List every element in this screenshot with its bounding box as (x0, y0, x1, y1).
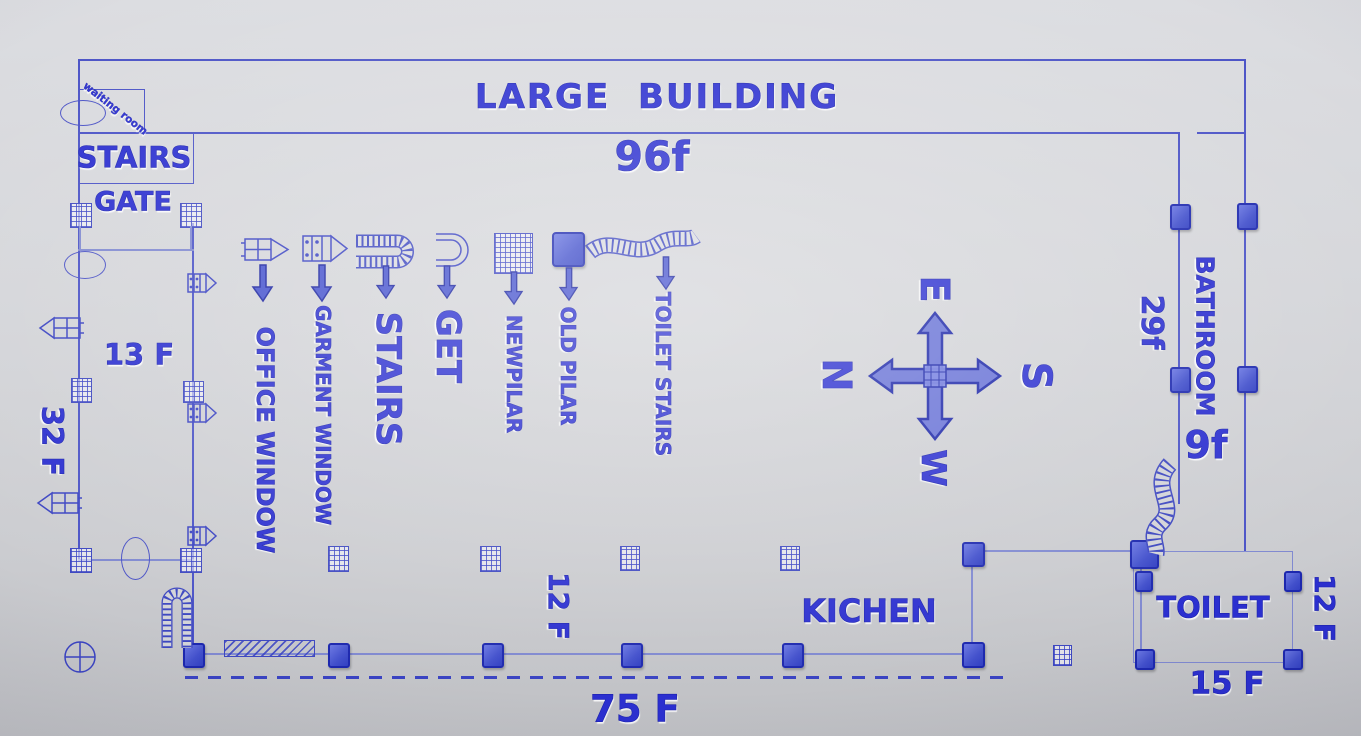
garment-window-icon (186, 401, 218, 425)
legend-toilet-stairs-label: TOILET STAIRS (653, 292, 673, 456)
legend-office-window-label: OFFICE WINDOW (253, 327, 277, 554)
bottom-hatched-strip (224, 640, 315, 657)
floor-plan-canvas: E N S W LARGE BUILDING 96f waiting room … (0, 0, 1361, 736)
new-pillar (180, 548, 202, 573)
dim-15f: 15 F (1189, 669, 1264, 700)
plan-title: LARGE BUILDING (475, 80, 839, 114)
legend-stairs-label: STAIRS (371, 312, 405, 447)
legend-garment-window-label: GARMENT WINDOW (313, 305, 333, 525)
wall-stairs-room-bottom (78, 249, 194, 251)
wall-kitchen-top (972, 550, 1133, 552)
down-arrow-icon (558, 267, 580, 301)
new-pillar (180, 203, 202, 228)
circle-cross-column-icon (62, 639, 98, 675)
old-pillar (962, 542, 985, 567)
wall-bathroom-inner (1178, 132, 1180, 504)
office-window-icon (38, 314, 84, 342)
old-pillar (1170, 204, 1191, 230)
down-arrow-icon (375, 265, 397, 299)
dim-29f: 29f (1136, 295, 1166, 350)
legend-old-pilar-label: OLD PILAR (558, 306, 578, 425)
old-pillar (328, 643, 350, 668)
office-window-icon (36, 489, 82, 517)
gate-label: GATE (94, 189, 172, 216)
dim-32f: 32 F (38, 406, 67, 476)
new-pillar (480, 546, 501, 572)
get-icon (432, 230, 476, 270)
toilet-label: TOILET (1156, 594, 1269, 623)
down-arrow-icon (503, 271, 525, 305)
old-pillar-icon (552, 232, 585, 267)
old-pillar (1284, 571, 1302, 592)
wall-outer-top (78, 59, 1246, 61)
new-pillar (70, 203, 92, 228)
garment-window-icon (300, 232, 350, 265)
new-pillar (780, 546, 800, 571)
compass-south-label: S (1016, 362, 1056, 391)
left-wall-door-arc (64, 251, 106, 279)
old-pillar (782, 643, 804, 668)
new-pillar (70, 548, 92, 573)
down-arrow-icon (436, 265, 458, 299)
garment-window-icon (186, 524, 218, 548)
down-arrow-icon (252, 264, 274, 302)
new-pillar-icon (494, 233, 533, 274)
bottom-left-u-stairs (156, 582, 198, 652)
kitchen-label: KICHEN (801, 595, 937, 627)
new-pillar (620, 546, 640, 571)
old-pillar (1170, 367, 1191, 393)
dim-9f: 9f (1185, 426, 1228, 464)
compass-rose (862, 303, 1008, 449)
old-pillar (1135, 649, 1155, 670)
old-pillar (1135, 571, 1153, 592)
bottom-room-door-arc (121, 537, 150, 580)
bottom-dashed-line (185, 676, 1012, 679)
legend-get-label: GET (431, 309, 465, 383)
compass-north-label: N (816, 358, 856, 391)
gate-stem-left (79, 226, 81, 250)
dim-13f: 13 F (104, 341, 174, 370)
bathroom-label: BATHROOM (1193, 255, 1218, 416)
compass-west-label: W (916, 449, 950, 487)
toilet-stairs-icon (586, 226, 700, 266)
wall-96f-line-right (1197, 132, 1246, 134)
dim-12f-toilet: 12 F (1310, 574, 1338, 642)
toilet-curved-stairs (1118, 458, 1188, 558)
office-window-icon (241, 234, 291, 265)
gate-stem-right (190, 226, 192, 250)
old-pillar (621, 643, 643, 668)
new-pillar (328, 546, 349, 572)
old-pillar (1237, 366, 1258, 393)
old-pillar (1237, 203, 1258, 230)
old-pillar (962, 642, 985, 668)
dim-12f-kitchen: 12 F (544, 572, 572, 640)
old-pillar (1283, 649, 1303, 670)
legend-newpilar-label: NEWPILAR (504, 315, 524, 433)
stairs-icon (350, 228, 420, 270)
new-pillar (71, 378, 92, 403)
dim-75f: 75 F (590, 691, 680, 728)
dim-96f: 96f (615, 137, 690, 178)
garment-window-icon (186, 271, 218, 295)
new-pillar (1053, 645, 1072, 666)
stairs-room-label: STAIRS (77, 144, 192, 173)
compass-east-label: E (914, 275, 954, 302)
new-pillar (183, 381, 204, 403)
down-arrow-icon (655, 256, 677, 290)
down-arrow-icon (311, 264, 333, 302)
old-pillar (482, 643, 504, 668)
